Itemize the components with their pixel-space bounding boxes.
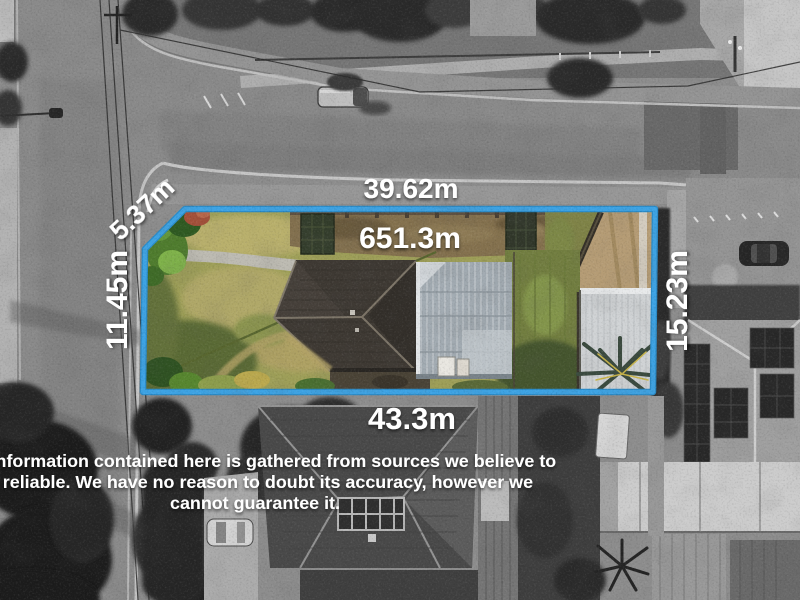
- svg-text:11.45m: 11.45m: [101, 250, 134, 350]
- svg-text:be reliable. We have no reason: be reliable. We have no reason to doubt …: [0, 472, 533, 492]
- svg-text:cannot guarantee it.: cannot guarantee it.: [170, 493, 340, 513]
- svg-text:15.23m: 15.23m: [661, 250, 694, 352]
- svg-text:39.62m: 39.62m: [364, 173, 459, 204]
- svg-text:The information contained here: The information contained here is gather…: [0, 451, 556, 471]
- svg-text:651.3m: 651.3m: [359, 222, 461, 255]
- svg-text:43.3m: 43.3m: [368, 401, 456, 436]
